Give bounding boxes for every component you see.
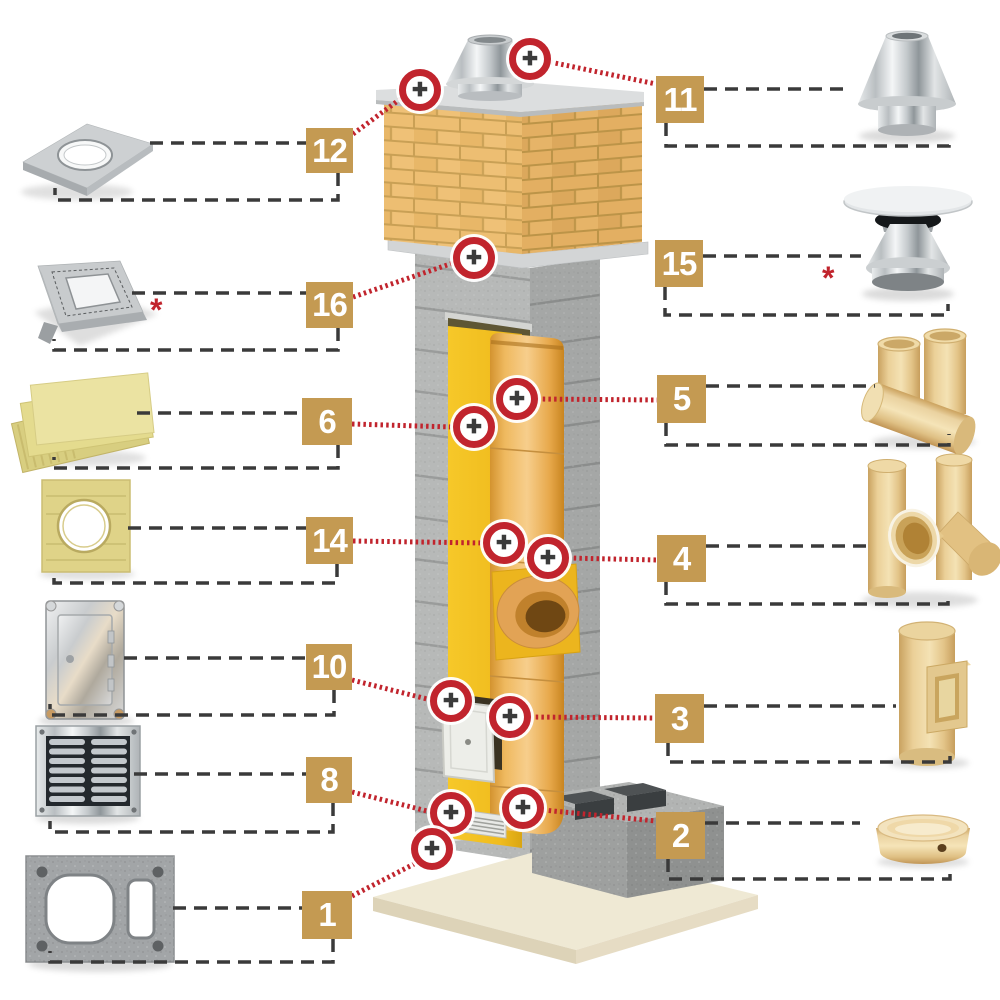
- plus-icon: ✚: [522, 50, 538, 69]
- part-illustration-1: [26, 856, 174, 972]
- hotspot-marker-14[interactable]: ✚: [483, 522, 525, 564]
- part-label-3-number: 3: [671, 700, 688, 738]
- part-label-6: 6: [302, 398, 352, 445]
- diagram-scene: [0, 0, 1000, 1000]
- hotspot-marker-6[interactable]: ✚: [453, 406, 495, 448]
- tee-outlet: [492, 564, 583, 660]
- part-illustration-5: [857, 329, 980, 457]
- plus-icon: ✚: [466, 249, 482, 268]
- part-illustration-12: [21, 124, 153, 200]
- hotspot-marker-10[interactable]: ✚: [430, 680, 472, 722]
- plus-icon: ✚: [502, 708, 518, 727]
- hotspot-marker-16[interactable]: ✚: [453, 237, 495, 279]
- plus-icon: ✚: [540, 549, 556, 568]
- part-label-11: 11: [656, 76, 704, 123]
- part-label-2: 2: [656, 812, 705, 859]
- part-label-16: 16: [306, 282, 353, 328]
- plus-icon: ✚: [424, 840, 440, 859]
- plus-icon: ✚: [509, 390, 525, 409]
- part-label-12: 12: [306, 128, 353, 173]
- plus-icon: ✚: [443, 804, 459, 823]
- optional-asterisk-15: *: [822, 262, 834, 294]
- part-illustration-14: [39, 480, 135, 580]
- part-label-14: 14: [306, 517, 353, 564]
- part-label-3: 3: [655, 694, 704, 743]
- part-label-1-number: 1: [318, 896, 335, 934]
- plus-icon: ✚: [412, 81, 428, 100]
- part-label-8-number: 8: [320, 761, 337, 799]
- part-illustration-6: [11, 373, 154, 473]
- part-label-12-number: 12: [312, 132, 347, 170]
- part-label-15-number: 15: [662, 245, 697, 283]
- part-label-5: 5: [657, 375, 706, 423]
- hotspot-marker-4[interactable]: ✚: [527, 537, 569, 579]
- part-label-11-number: 11: [664, 81, 697, 119]
- part-label-5-number: 5: [673, 380, 690, 418]
- part-illustration-4: [862, 454, 1000, 608]
- part-illustration-11: [858, 31, 956, 143]
- plus-icon: ✚: [515, 799, 531, 818]
- part-label-15: 15: [655, 240, 703, 287]
- hotspot-marker-12[interactable]: ✚: [399, 69, 441, 111]
- part-illustration-10: [38, 601, 134, 727]
- plus-icon: ✚: [496, 534, 512, 553]
- part-label-1: 1: [302, 891, 352, 939]
- hotspot-marker-2[interactable]: ✚: [502, 787, 544, 829]
- part-illustration-2: [876, 815, 970, 868]
- part-label-8: 8: [306, 757, 352, 803]
- hotspot-marker-11[interactable]: ✚: [509, 38, 551, 80]
- hotspot-marker-3[interactable]: ✚: [489, 696, 531, 738]
- part-illustration-8: [36, 726, 140, 824]
- part-label-4: 4: [657, 535, 706, 582]
- hotspot-marker-5[interactable]: ✚: [496, 378, 538, 420]
- hotspot-marker-1[interactable]: ✚: [411, 828, 453, 870]
- part-illustration-15: [844, 186, 972, 301]
- part-label-6-number: 6: [318, 403, 335, 441]
- part-label-16-number: 16: [312, 286, 347, 324]
- part-label-4-number: 4: [673, 540, 690, 578]
- part-label-2-number: 2: [672, 817, 689, 855]
- plus-icon: ✚: [443, 692, 459, 711]
- optional-asterisk-16: *: [150, 294, 162, 326]
- brick-head: [384, 102, 642, 254]
- part-illustration-3: [889, 622, 971, 769]
- part-label-10-number: 10: [312, 648, 347, 686]
- part-label-10: 10: [306, 644, 352, 690]
- part-label-14-number: 14: [312, 522, 347, 560]
- part-illustration-16: [34, 261, 158, 346]
- plus-icon: ✚: [466, 418, 482, 437]
- chimney-parts-diagram: 12 11 16 15 6 5 14 4 10 3 8 2 1 ✚ ✚ ✚ ✚ …: [0, 0, 1000, 1000]
